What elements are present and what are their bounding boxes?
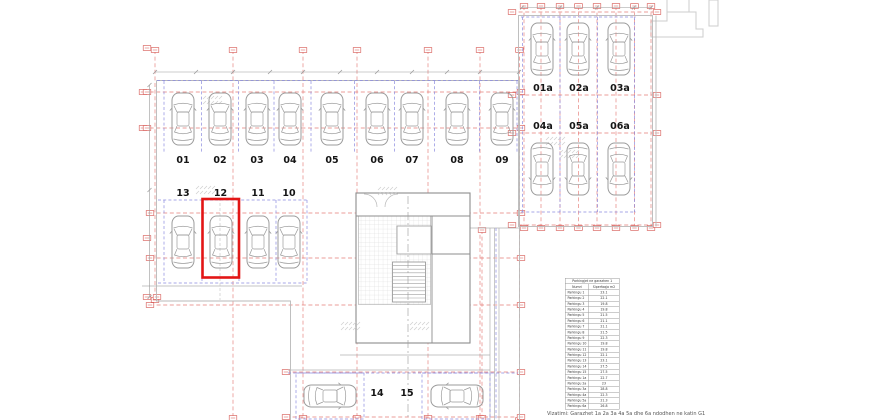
car-icon [208, 216, 234, 268]
car-icon [277, 93, 303, 145]
hatch-line [200, 191, 203, 194]
spot-label: 05 [325, 155, 338, 166]
hatch-line [558, 142, 561, 145]
hatch-line [382, 187, 385, 190]
table-header-row: Numri Siperfaqja m2 [565, 284, 619, 290]
spot-label: 01a [533, 83, 553, 94]
cell-number: Parkingu 6a [565, 403, 588, 409]
hatch-line [378, 187, 381, 190]
car-icon [170, 216, 196, 268]
car-icon [489, 93, 515, 145]
cell-number: Parkingu 3a [565, 386, 588, 392]
area-table: Parkingjet ne garazhen 1 Numri Siperfaqj… [565, 278, 619, 409]
hatch-line [562, 142, 565, 145]
hatch-line [550, 137, 553, 140]
spot-label: 06a [610, 121, 630, 132]
spot-label: 14 [370, 388, 384, 399]
cell-number: Parkingu 2a [565, 381, 588, 387]
hatch-line [203, 96, 206, 99]
car-icon [431, 383, 483, 409]
hatch-line [558, 137, 561, 140]
cell-number: Parkingu 4a [565, 392, 588, 398]
hatch-line [203, 101, 206, 104]
car-icon [170, 93, 196, 145]
hatch-line [572, 150, 575, 153]
hatch-line [345, 322, 348, 325]
hatch-line [204, 191, 207, 194]
spot-label: 08 [450, 155, 464, 166]
spot-label: 13 [176, 188, 189, 199]
col-area: Siperfaqja m2 [589, 284, 620, 290]
car-icon [444, 93, 470, 145]
hatch-line [345, 327, 348, 330]
car-icon [565, 23, 591, 75]
hatch-line [219, 96, 222, 99]
spot-label: 02a [569, 83, 589, 94]
spot-label: 15 [400, 388, 413, 399]
core-stairs [393, 262, 426, 302]
hatch-line [200, 186, 203, 189]
hatch-line [196, 186, 199, 189]
car-icon [319, 93, 345, 145]
car-icon [529, 143, 555, 195]
cell-number: Parkingu 1a [565, 375, 588, 381]
hatch-line [341, 322, 344, 325]
hatch-line [572, 155, 575, 158]
hatch-line [349, 322, 352, 325]
core-room [397, 226, 431, 254]
stall-line [296, 373, 364, 419]
floor-plan: 0102030405060708091312111001a02a03a04a05… [0, 0, 870, 420]
spot-label: 04a [533, 121, 553, 132]
hatch-line [560, 150, 563, 153]
cell-area: 26.8 [589, 403, 620, 409]
hatch-line [394, 187, 397, 190]
plan-drawing: 0102030405060708091312111001a02a03a04a05… [0, 0, 870, 420]
spot-label: 01 [176, 155, 189, 166]
car-icon [245, 216, 271, 268]
hatch-line [568, 150, 571, 153]
stair-core [356, 193, 470, 418]
hatch-line [196, 191, 199, 194]
table-title: Parkingjet ne garazhen 1 [565, 278, 619, 284]
hatch-line [211, 96, 214, 99]
car-icon [207, 93, 233, 145]
car-icon [276, 216, 302, 268]
selected-spot-highlight [203, 199, 240, 278]
cell-number: Parkingu 13 [565, 358, 588, 364]
car-icon [529, 23, 555, 75]
hatch-line [211, 101, 214, 104]
spot-label: 11 [251, 188, 264, 199]
car-icon [399, 93, 425, 145]
hatch-line [554, 142, 557, 145]
adjacent-building-outline [651, 0, 718, 37]
car-icon [606, 23, 632, 75]
spot-label: 10 [282, 188, 296, 199]
cell-number: Parkingu 12 [565, 352, 588, 358]
cell-number: Parkingu 10 [565, 341, 588, 347]
spot-label: 09 [495, 155, 508, 166]
spot-label: 04 [283, 155, 297, 166]
hatch-line [546, 137, 549, 140]
hatch-line [204, 186, 207, 189]
hatch-line [208, 186, 211, 189]
car-icon [304, 383, 356, 409]
cell-number: Parkingu 14 [565, 364, 588, 370]
hatch-line [208, 191, 211, 194]
hatch-line [215, 96, 218, 99]
spot-label: 02 [213, 155, 226, 166]
cell-number: Parkingu 11 [565, 347, 588, 353]
cell-number: Parkingu 5a [565, 398, 588, 404]
spot-label: 05a [569, 121, 589, 132]
car-icon [244, 93, 270, 145]
hatch-line [386, 187, 389, 190]
hatch-line [576, 155, 579, 158]
spot-label: 06 [370, 155, 384, 166]
spot-label: 03 [250, 155, 263, 166]
hatch-line [341, 327, 344, 330]
car-icon [606, 143, 632, 195]
car-icon [364, 93, 390, 145]
spot-label: 12 [214, 188, 227, 199]
cell-number: Parkingu 15 [565, 369, 588, 375]
building-outline-rect [709, 0, 718, 26]
building-outline-path [651, 0, 703, 37]
hatch-line [560, 155, 563, 158]
caption: Vizatimi: Garazhet 1a 2a 3a 4a 5a dhe 6a… [547, 411, 705, 417]
spot-label: 07 [405, 155, 418, 166]
table-row: Parkingu 6a26.8 [565, 403, 619, 409]
hatch-line [554, 137, 557, 140]
table-title-row: Parkingjet ne garazhen 1 [565, 278, 619, 284]
hatch-line [390, 187, 393, 190]
spot-label: 03a [610, 83, 630, 94]
hatch-line [349, 327, 352, 330]
hatch-line [562, 137, 565, 140]
